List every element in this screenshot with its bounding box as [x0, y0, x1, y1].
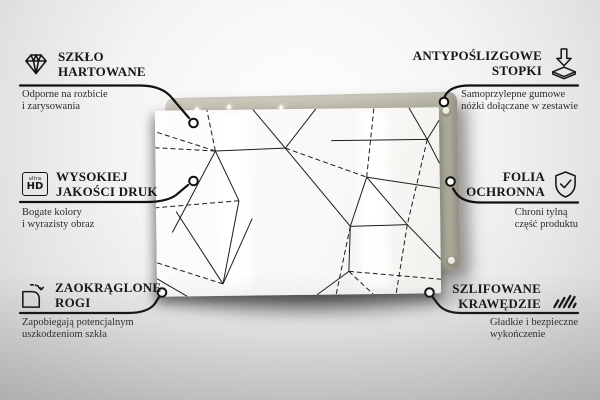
feature-protective-film-desc: Chroni tylną część produktu: [515, 207, 578, 230]
hd-label: HD: [27, 182, 44, 192]
anti-slip-foot: [441, 106, 450, 115]
sparkle-glint-icon: ✦: [225, 104, 234, 114]
feature-polished-edges: SZLIFOWANE KRAWĘDZIE: [452, 281, 578, 311]
feature-high-quality-print: ultra HD WYSOKIEJ JAKOŚCI DRUK: [22, 169, 158, 199]
feature-title: FOLIA: [466, 169, 545, 184]
feature-title: HARTOWANE: [58, 64, 146, 79]
feature-title: JAKOŚCI DRUK: [56, 184, 158, 199]
feature-title: ZAOKRĄGLONE: [55, 280, 161, 295]
feature-desc: Gładkie i bezpieczne: [490, 317, 578, 329]
feature-title: ANTYPOŚLIZGOWE: [413, 48, 542, 63]
feature-desc: i zarysowania: [22, 101, 108, 113]
polished-edges-icon: [549, 284, 578, 309]
feature-desc: Bogate kolory: [22, 207, 94, 219]
feature-desc: nóżki dołączane w zestawie: [461, 101, 578, 113]
sparkle-glint-icon: ✦: [277, 104, 286, 114]
feature-desc: część produktu: [515, 219, 578, 231]
feature-desc: Chroni tylną: [515, 207, 578, 219]
ultra-hd-icon: ultra HD: [22, 172, 48, 196]
sparkle-glint-icon: ✦: [193, 106, 202, 116]
anti-slip-feet-icon: [550, 46, 578, 80]
glass-panel: ✦ ✦ ✦: [155, 107, 441, 296]
feature-desc: i wyrazisty obraz: [22, 219, 94, 231]
pattern-geometric-lines: [155, 107, 441, 296]
feature-tempered-glass: SZKŁO HARTOWANE: [22, 49, 146, 79]
feature-rounded-corners-desc: Zapobiegają potencjalnym uszkodzeniom sz…: [22, 317, 134, 340]
feature-title: ROGI: [55, 295, 161, 310]
feature-desc: Samoprzylepne gumowe: [461, 89, 578, 101]
feature-high-quality-print-desc: Bogate kolory i wyrazisty obraz: [22, 207, 94, 230]
feature-title: KRAWĘDZIE: [452, 296, 541, 311]
feature-protective-film: FOLIA OCHRONNA: [466, 169, 578, 199]
diamond-icon: [22, 52, 50, 76]
feature-desc: uszkodzeniom szkła: [22, 329, 134, 341]
feature-anti-slip-feet: ANTYPOŚLIZGOWE STOPKI: [413, 46, 578, 80]
rounded-corner-icon: [18, 281, 47, 310]
product-infographic: ✦ ✦ ✦: [0, 0, 600, 400]
feature-desc: wykończenie: [490, 329, 578, 341]
feature-title: SZLIFOWANE: [452, 281, 541, 296]
shield-check-icon: [553, 170, 578, 199]
feature-desc: Odporne na rozbicie: [22, 89, 108, 101]
feature-rounded-corners: ZAOKRĄGLONE ROGI: [18, 280, 161, 310]
anti-slip-foot: [447, 256, 456, 265]
feature-anti-slip-feet-desc: Samoprzylepne gumowe nóżki dołączane w z…: [461, 89, 578, 112]
feature-desc: Zapobiegają potencjalnym: [22, 317, 134, 329]
feature-title: WYSOKIEJ: [56, 169, 158, 184]
feature-polished-edges-desc: Gładkie i bezpieczne wykończenie: [490, 317, 578, 340]
feature-title: OCHRONNA: [466, 184, 545, 199]
feature-title: SZKŁO: [58, 49, 146, 64]
feature-tempered-glass-desc: Odporne na rozbicie i zarysowania: [22, 89, 108, 112]
feature-title: STOPKI: [413, 63, 542, 78]
